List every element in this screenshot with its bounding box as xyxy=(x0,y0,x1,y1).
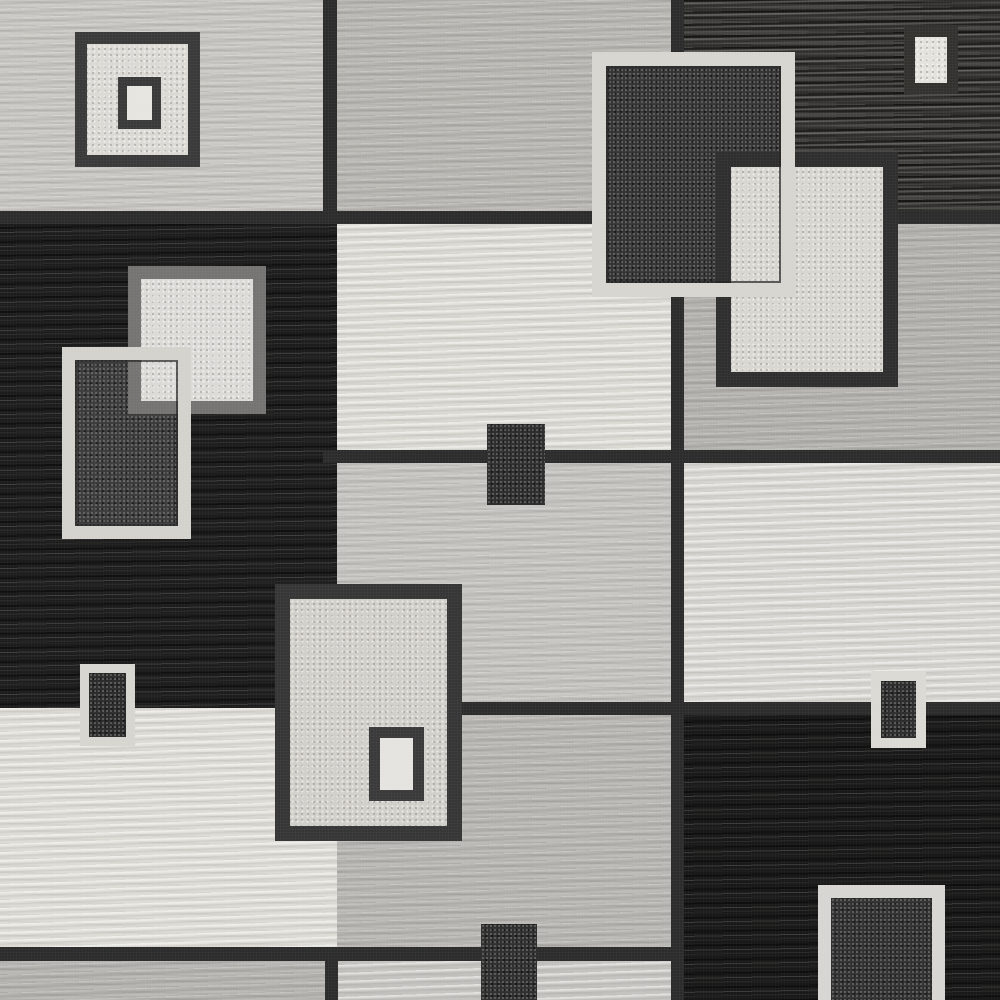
motif-bottomright-small-rect xyxy=(871,671,926,748)
motif-bottomleft-small-rect xyxy=(80,664,135,746)
panel-right-offwhite xyxy=(678,461,1000,715)
motif-center-dark-block xyxy=(487,424,545,505)
grid-vline-left-top xyxy=(323,0,337,224)
panel-bottom-left-strip xyxy=(0,957,337,1000)
rug-photo xyxy=(0,0,1000,1000)
motif-left-overlap-cream-frame xyxy=(62,347,191,539)
motif-topright-white-rect xyxy=(904,26,958,94)
motif-bottomcenter-small-rect xyxy=(481,924,537,1000)
motif-top-overlap-cream-frame xyxy=(592,52,795,297)
motif-bottom-big-inner-rect xyxy=(369,727,424,801)
motif-bottom-big-rect xyxy=(275,584,462,841)
grid-vline-left-bottom xyxy=(325,957,338,1000)
grid-hline-bottom xyxy=(0,947,678,961)
motif-bottomright-large-rect xyxy=(818,885,945,1000)
grid-hline-center xyxy=(323,450,1000,463)
motif-nested-square-inner xyxy=(118,77,161,129)
